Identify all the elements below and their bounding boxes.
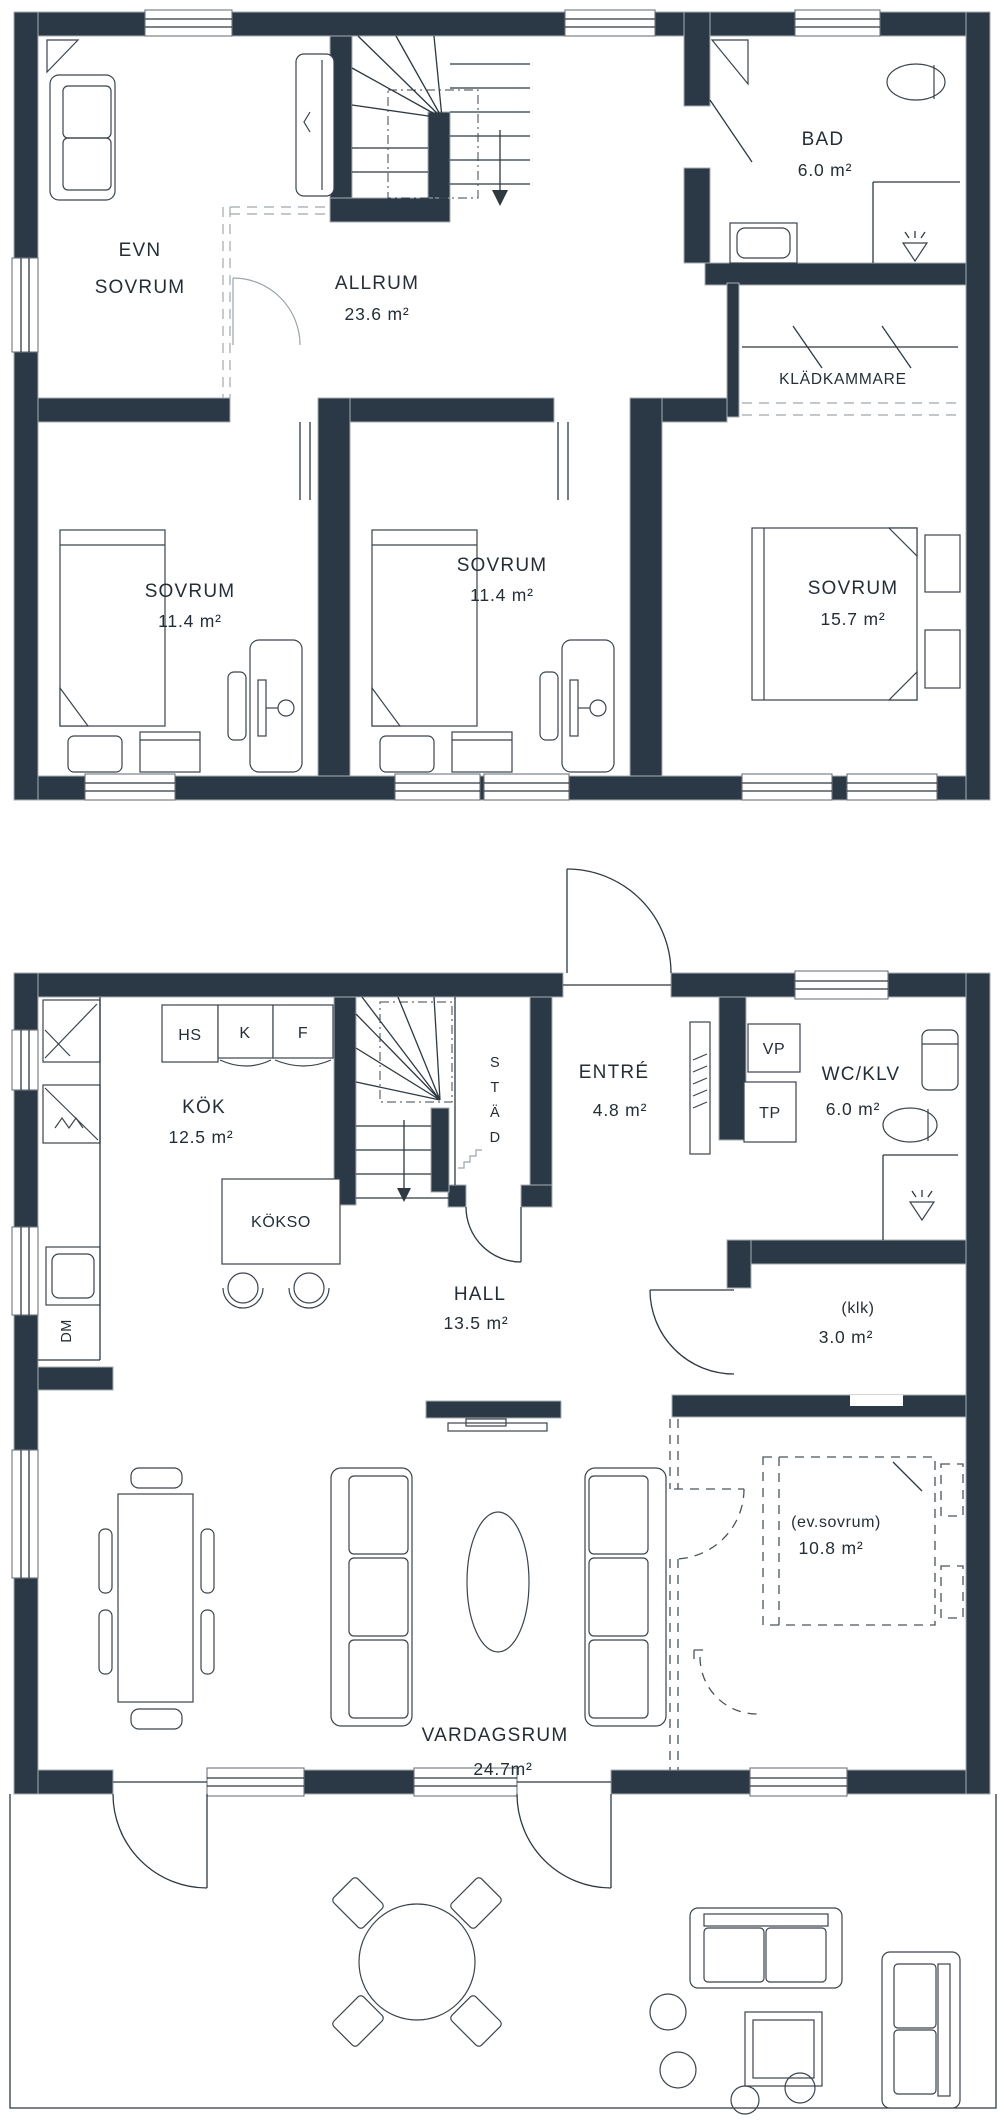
svg-text:D: D [490,1130,501,1146]
svg-text:Ä: Ä [490,1104,500,1121]
bad-fixtures [710,40,960,263]
dining-set [99,1468,214,1729]
future-door-swing-2 [700,1657,757,1714]
coffee-table-icon [467,1512,529,1652]
room-area-kok: 12.5 m² [169,1127,234,1147]
patio-outline [10,1794,996,2108]
shower-partition [873,182,960,263]
label-vp: VP [763,1041,786,1058]
label-hs: HS [178,1027,201,1044]
sink-icon [922,1030,958,1090]
window [12,1227,38,1315]
front-door [563,869,671,985]
window [12,1030,38,1090]
room-label-wc: WC/KLV [822,1064,901,1085]
outdoor-sofa-icon [882,1952,960,2108]
door-swing [466,1207,521,1262]
window [12,1450,38,1578]
room-area-sovrum-right: 15.7 m² [821,609,886,629]
coat-rack-icon [690,1022,710,1154]
door-swing [567,869,671,973]
patio-table-icon [745,2012,822,2086]
corner-shelf-icon [712,40,748,84]
pouf-icon [660,2052,696,2088]
future-door-swing [674,1489,744,1559]
klk-door [650,1290,734,1374]
future-partition-dashed [670,1419,757,1770]
corner-cabinet-icon [43,1000,100,1062]
nightstand-icon [925,630,960,688]
room-area-sovrum-left: 11.4 m² [158,611,222,631]
window [12,258,38,352]
window [85,774,175,800]
stad-door [466,1207,521,1262]
chair-icon [99,1529,112,1593]
wc-fixtures [883,1030,958,1240]
room-label-ev-sovrum: (ev.sovrum) [791,1514,881,1531]
future-wall-dashed [223,207,330,398]
future-nightstand-icon [941,1566,963,1618]
room-label-klk: (klk) [841,1300,874,1317]
corner-shelf-icon [47,40,78,72]
room-label-vardagsrum: VARDAGSRUM [422,1725,569,1746]
label-kokso: KÖKSO [251,1213,311,1231]
svg-text:T: T [490,1080,499,1096]
window [395,774,480,800]
window [795,971,888,999]
nightstand-icon [140,732,200,772]
door-swing [233,278,300,345]
door-swing [650,1290,734,1374]
bedroom-left-furniture [60,530,302,772]
patio-lounge-set [650,1908,960,2114]
sink-icon [46,1247,100,1305]
floorplan-drawing: EVN SOVRUM ALLRUM 23.6 m² BAD 6.0 m² KLÄ… [0,0,1004,2120]
stair-winders [352,36,442,118]
dining-table-icon [118,1494,193,1702]
round-table-icon [359,1904,475,2020]
toilet-icon [883,1108,937,1142]
stool-icon [223,1273,263,1308]
sink-icon [730,223,797,263]
pouf-icon [650,1994,686,2030]
door-swing [113,1794,207,1888]
patio-dining-set [331,1876,503,2048]
window [795,10,880,36]
kitchen: DM KÖKSO [38,997,340,1360]
window [750,1768,847,1796]
room-area-wc: 6.0 m² [826,1099,880,1119]
chair-icon [131,1709,182,1729]
window [847,774,937,800]
stad-label: S T Ä D [490,1055,501,1146]
room-area-hall: 13.5 m² [444,1313,509,1333]
room-label-sovrum-left: SOVRUM [145,581,236,602]
room-area-klk: 3.0 m² [819,1327,873,1347]
room-area-allrum: 23.6 m² [345,304,410,324]
window [742,774,832,800]
room-label-bad: BAD [802,129,845,150]
ground-floor-plan: DM KÖKSO S T Ä D [12,869,990,1888]
room-label-allrum: ALLRUM [335,273,419,294]
future-nightstand-icon [941,1464,963,1516]
label-kyl: K [239,1025,250,1042]
room-area-sovrum-mid: 11.4 m² [470,585,534,605]
patio-doors [113,1782,611,1888]
label-frys: F [298,1025,308,1042]
floor-drain-icon [903,231,927,261]
door-leaf [710,100,752,162]
room-label-evn: EVN [119,240,162,261]
room-area-entre: 4.8 m² [593,1100,647,1120]
steps-glyph [458,1150,482,1168]
outdoor-sofa-icon [690,1908,842,1988]
stair-arrow-down [397,1188,411,1202]
toilet-icon [887,64,945,100]
allrum-sofa-icon [296,54,334,196]
upper-floor-plan: EVN SOVRUM ALLRUM 23.6 m² BAD 6.0 m² KLÄ… [12,10,990,800]
room-label-entre: ENTRÉ [579,1062,649,1083]
stair-treads-left [352,148,428,172]
room-label-evn2: SOVRUM [95,277,186,298]
label-tp: TP [759,1105,781,1122]
nightstand-icon [452,732,512,772]
window [207,1768,304,1796]
sideboard-shelf [448,1419,547,1431]
sofa-icon [585,1468,666,1726]
nightstand-icon [925,535,960,592]
sofa-icon [331,1468,412,1726]
chair-icon [131,1468,182,1488]
cushion-icon [68,736,122,772]
door-swing [517,1794,611,1888]
stair-arrow-down [492,190,508,206]
stool-icon [289,1273,329,1308]
window [565,10,655,36]
chair-icon [540,672,558,740]
stair-treads [450,64,530,184]
shower-partition [883,1155,958,1240]
svg-text:S: S [490,1055,500,1071]
chair-icon [201,1610,214,1674]
chair-icon [99,1610,112,1674]
kitchen-island: KÖKSO [222,1179,340,1264]
chair-icon [201,1529,214,1593]
sofa-icon [50,75,115,200]
evn-sovrum-furniture [47,40,115,200]
sideboard-icon [426,1401,561,1418]
sofa-group [331,1468,666,1726]
room-area-vardagsrum: 24.7m² [473,1759,532,1779]
room-label-sovrum-mid: SOVRUM [457,555,548,576]
opening-dashed [742,403,958,415]
room-label-sovrum-right: SOVRUM [808,578,899,599]
room-label-hall: HALL [454,1284,506,1305]
patio [10,1794,996,2114]
stair-walkline [380,1002,452,1102]
room-label-kok: KÖK [182,1097,226,1118]
stair-winders [356,997,440,1100]
window [484,774,569,800]
room-area-bad: 6.0 m² [798,160,852,180]
cushion-icon [380,736,434,772]
chair-icon [228,672,246,740]
floor-drain-icon [910,1190,934,1220]
room-label-kladkammare: KLÄDKAMMARE [779,371,907,388]
bed-icon [60,530,165,726]
label-dm: DM [59,1319,75,1342]
room-area-ev-sovrum: 10.8 m² [799,1538,864,1558]
pouf-icon [731,2086,759,2114]
floorplan-page: EVN SOVRUM ALLRUM 23.6 m² BAD 6.0 m² KLÄ… [0,0,1004,2120]
hob-icon [43,1085,100,1143]
window [145,10,232,36]
